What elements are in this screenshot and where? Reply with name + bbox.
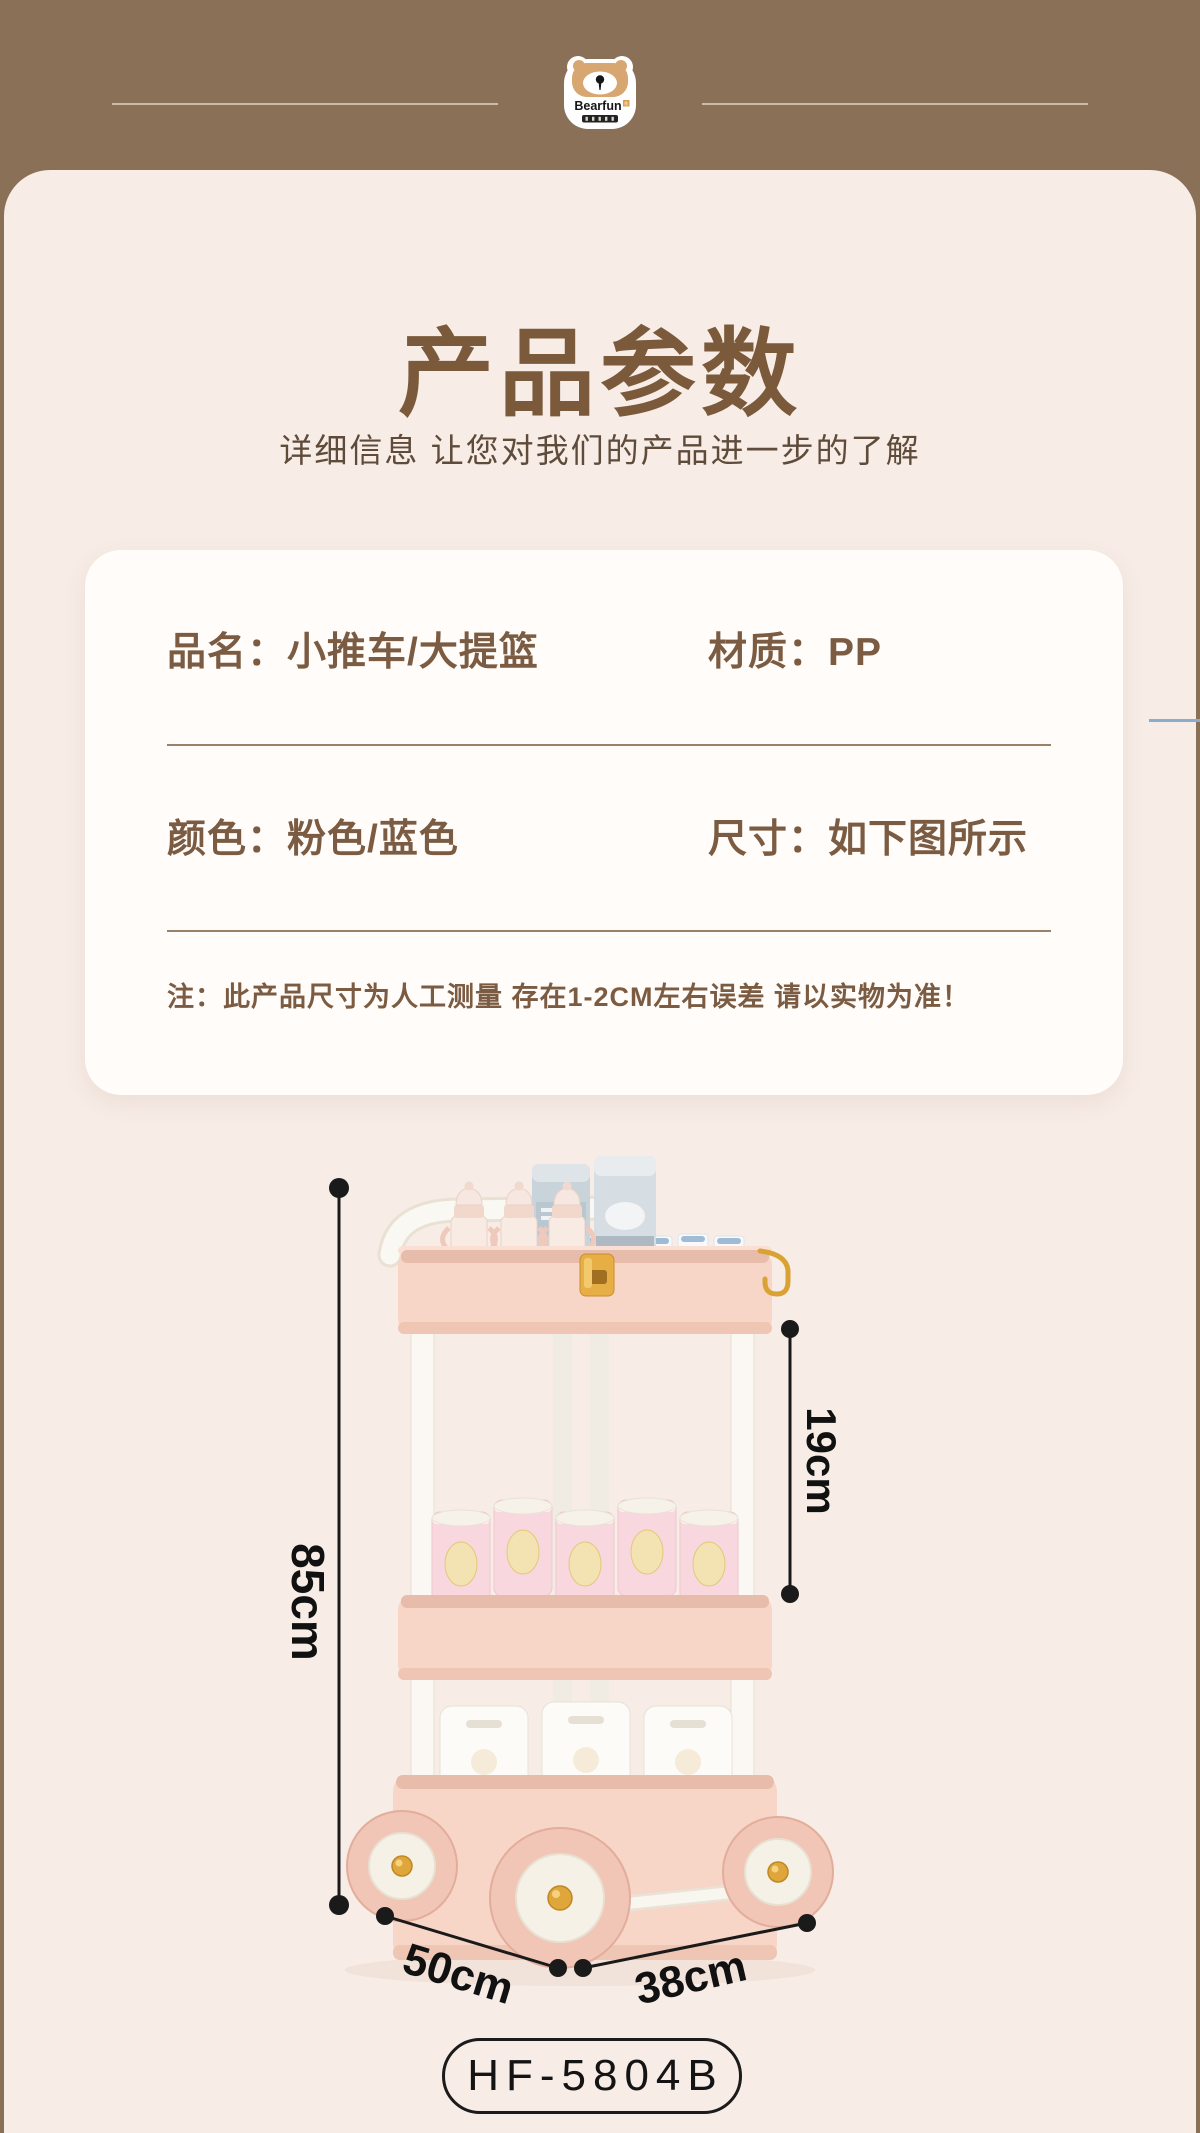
brand-logo: Bearfun ®	[562, 52, 638, 134]
middle-basket	[398, 1595, 772, 1680]
dim-tier-gap-label: 19cm	[798, 1407, 845, 1514]
spec-size: 尺寸：如下图所示	[708, 818, 1028, 862]
product-spec-page: Bearfun ® 产品参数 详细信息 让您对我们的产品进一步的了解 品名：小推…	[0, 0, 1200, 2133]
spec-material: 材质：PP	[708, 631, 882, 675]
gold-clasp-icon	[580, 1254, 614, 1296]
spec-note: 注：此产品尺寸为人工测量 存在1-2CM左右误差 请以实物为准！	[167, 980, 970, 1014]
wheel-center	[490, 1828, 630, 1968]
product-figure: 85cm 19cm 50cm 38cm	[270, 1150, 880, 2020]
page-subtitle: 详细信息 让您对我们的产品进一步的了解	[0, 424, 1200, 472]
wheel-left	[347, 1811, 457, 1921]
header-divider-right	[702, 103, 1088, 105]
spec-name: 品名：小推车/大提篮	[167, 631, 539, 675]
dim-height-label: 85cm	[282, 1543, 334, 1661]
brand-text: Bearfun	[574, 99, 621, 113]
dimension-tier-gap: 19cm	[781, 1320, 845, 1603]
spec-card: 品名：小推车/大提篮 材质：PP 颜色：粉色/蓝色 尺寸：如下图所示 注：此产品…	[85, 550, 1123, 1095]
milk-cans	[432, 1498, 738, 1608]
wheel-right	[723, 1817, 833, 1927]
model-badge: HF-5804B	[442, 2038, 742, 2114]
logo-subtext-bar	[582, 115, 618, 123]
accent-blue-line	[1149, 719, 1200, 722]
spec-divider-2	[167, 930, 1051, 932]
header-divider-left	[112, 103, 498, 105]
spec-color: 颜色：粉色/蓝色	[167, 818, 459, 862]
dimension-height: 85cm	[282, 1178, 349, 1915]
page-title: 产品参数	[0, 296, 1200, 435]
spec-divider-1	[167, 744, 1051, 746]
registered-mark: ®	[624, 100, 628, 107]
